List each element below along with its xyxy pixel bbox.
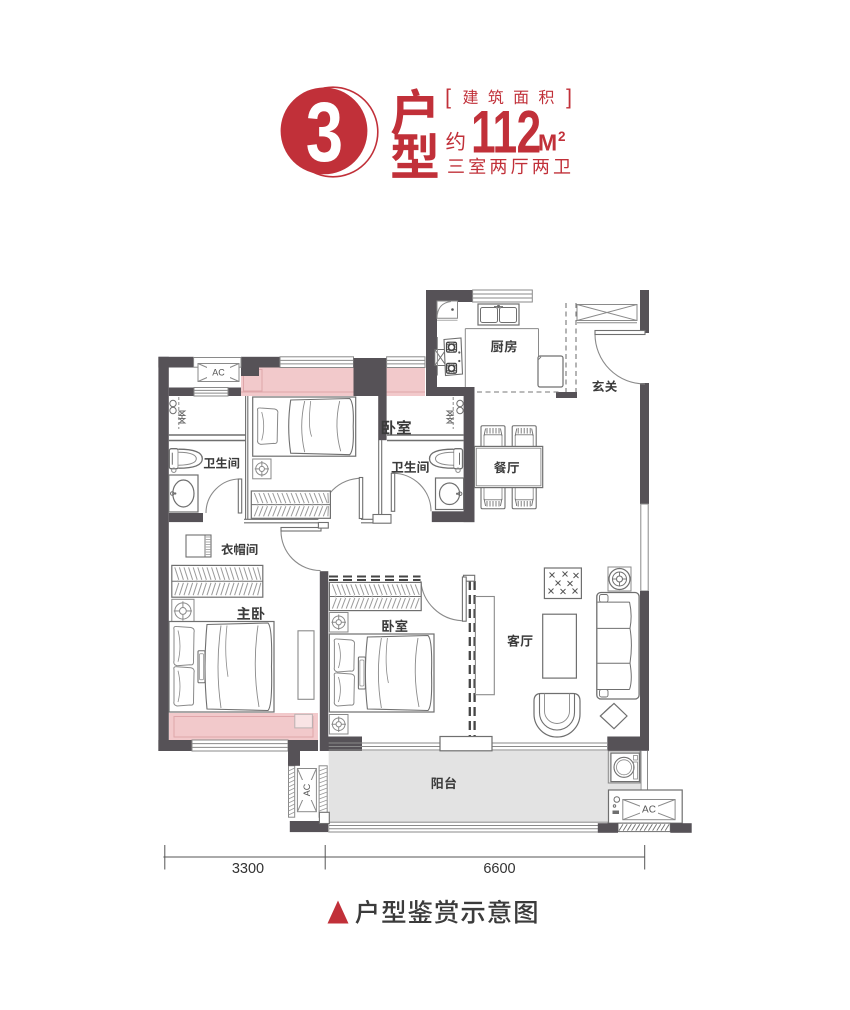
svg-text:]: ] bbox=[566, 86, 572, 109]
svg-text:6600: 6600 bbox=[483, 861, 515, 877]
svg-text:112: 112 bbox=[471, 99, 540, 166]
svg-text:AC: AC bbox=[302, 783, 312, 796]
svg-text:M: M bbox=[538, 130, 557, 156]
svg-text:[: [ bbox=[445, 86, 451, 109]
svg-text:2: 2 bbox=[558, 129, 566, 144]
svg-text:3: 3 bbox=[306, 86, 343, 180]
svg-text:AC: AC bbox=[212, 368, 225, 378]
svg-text:AC: AC bbox=[642, 805, 656, 816]
svg-text:3300: 3300 bbox=[232, 861, 264, 877]
